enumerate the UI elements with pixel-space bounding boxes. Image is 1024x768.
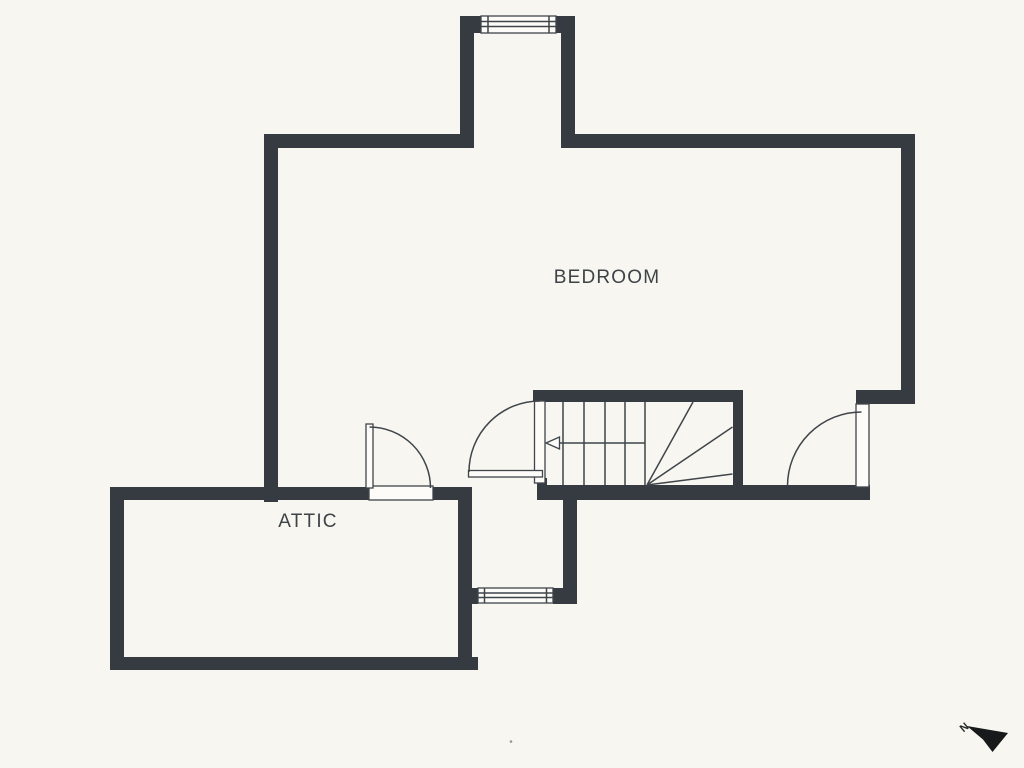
bedroom-right-door xyxy=(788,404,870,487)
attic-door-leaf xyxy=(366,424,373,488)
walls xyxy=(110,16,915,670)
stair-direction-arrow-head xyxy=(546,437,560,449)
attic-door xyxy=(366,424,433,500)
bedroom-right-step-wall xyxy=(856,390,915,404)
top-window-frame xyxy=(481,16,556,33)
stair-winder-treads xyxy=(647,402,733,485)
attic-label: ATTIC xyxy=(228,511,388,532)
stairs-door xyxy=(469,401,546,483)
attic-bottom-wall xyxy=(110,657,478,670)
bottom-window-frame xyxy=(478,588,553,603)
staircase xyxy=(546,402,733,485)
stairs-top-wall xyxy=(533,390,743,402)
north-label: N xyxy=(958,721,972,735)
bedroom-left-wall xyxy=(264,134,278,502)
attic-right-wall xyxy=(458,487,472,670)
bedroom-top-wall-left xyxy=(264,134,464,148)
stairs-door-leaf xyxy=(469,471,543,478)
attic-left-wall xyxy=(110,487,124,670)
attic-door-threshold xyxy=(369,486,433,500)
bedroom-label: BEDROOM xyxy=(497,267,717,288)
bottom-window-right-jamb xyxy=(553,588,577,604)
bottom-window xyxy=(478,588,553,603)
dormer-right-wall xyxy=(561,16,575,148)
floor-plan-drawing: N xyxy=(0,0,1024,768)
attic-door-swing-arc xyxy=(370,427,431,488)
stray-dot xyxy=(510,740,513,743)
bedroom-right-wall xyxy=(901,134,915,404)
bottom-window-left-jamb xyxy=(458,588,478,604)
bedroom-top-wall-right xyxy=(571,134,915,148)
north-compass: N xyxy=(958,721,1008,752)
stairs-right-wall xyxy=(733,390,743,500)
right-door-swing-arc xyxy=(788,412,862,486)
stairs-door-swing-arc xyxy=(469,401,540,472)
north-arrow-icon xyxy=(967,726,1008,752)
bedroom-bottom-wall xyxy=(537,485,870,500)
top-window xyxy=(481,16,556,33)
dormer-left-wall xyxy=(460,16,474,148)
right-door-leaf xyxy=(856,404,869,487)
floor-plan-canvas: N BEDROOM ATTIC xyxy=(0,0,1024,768)
